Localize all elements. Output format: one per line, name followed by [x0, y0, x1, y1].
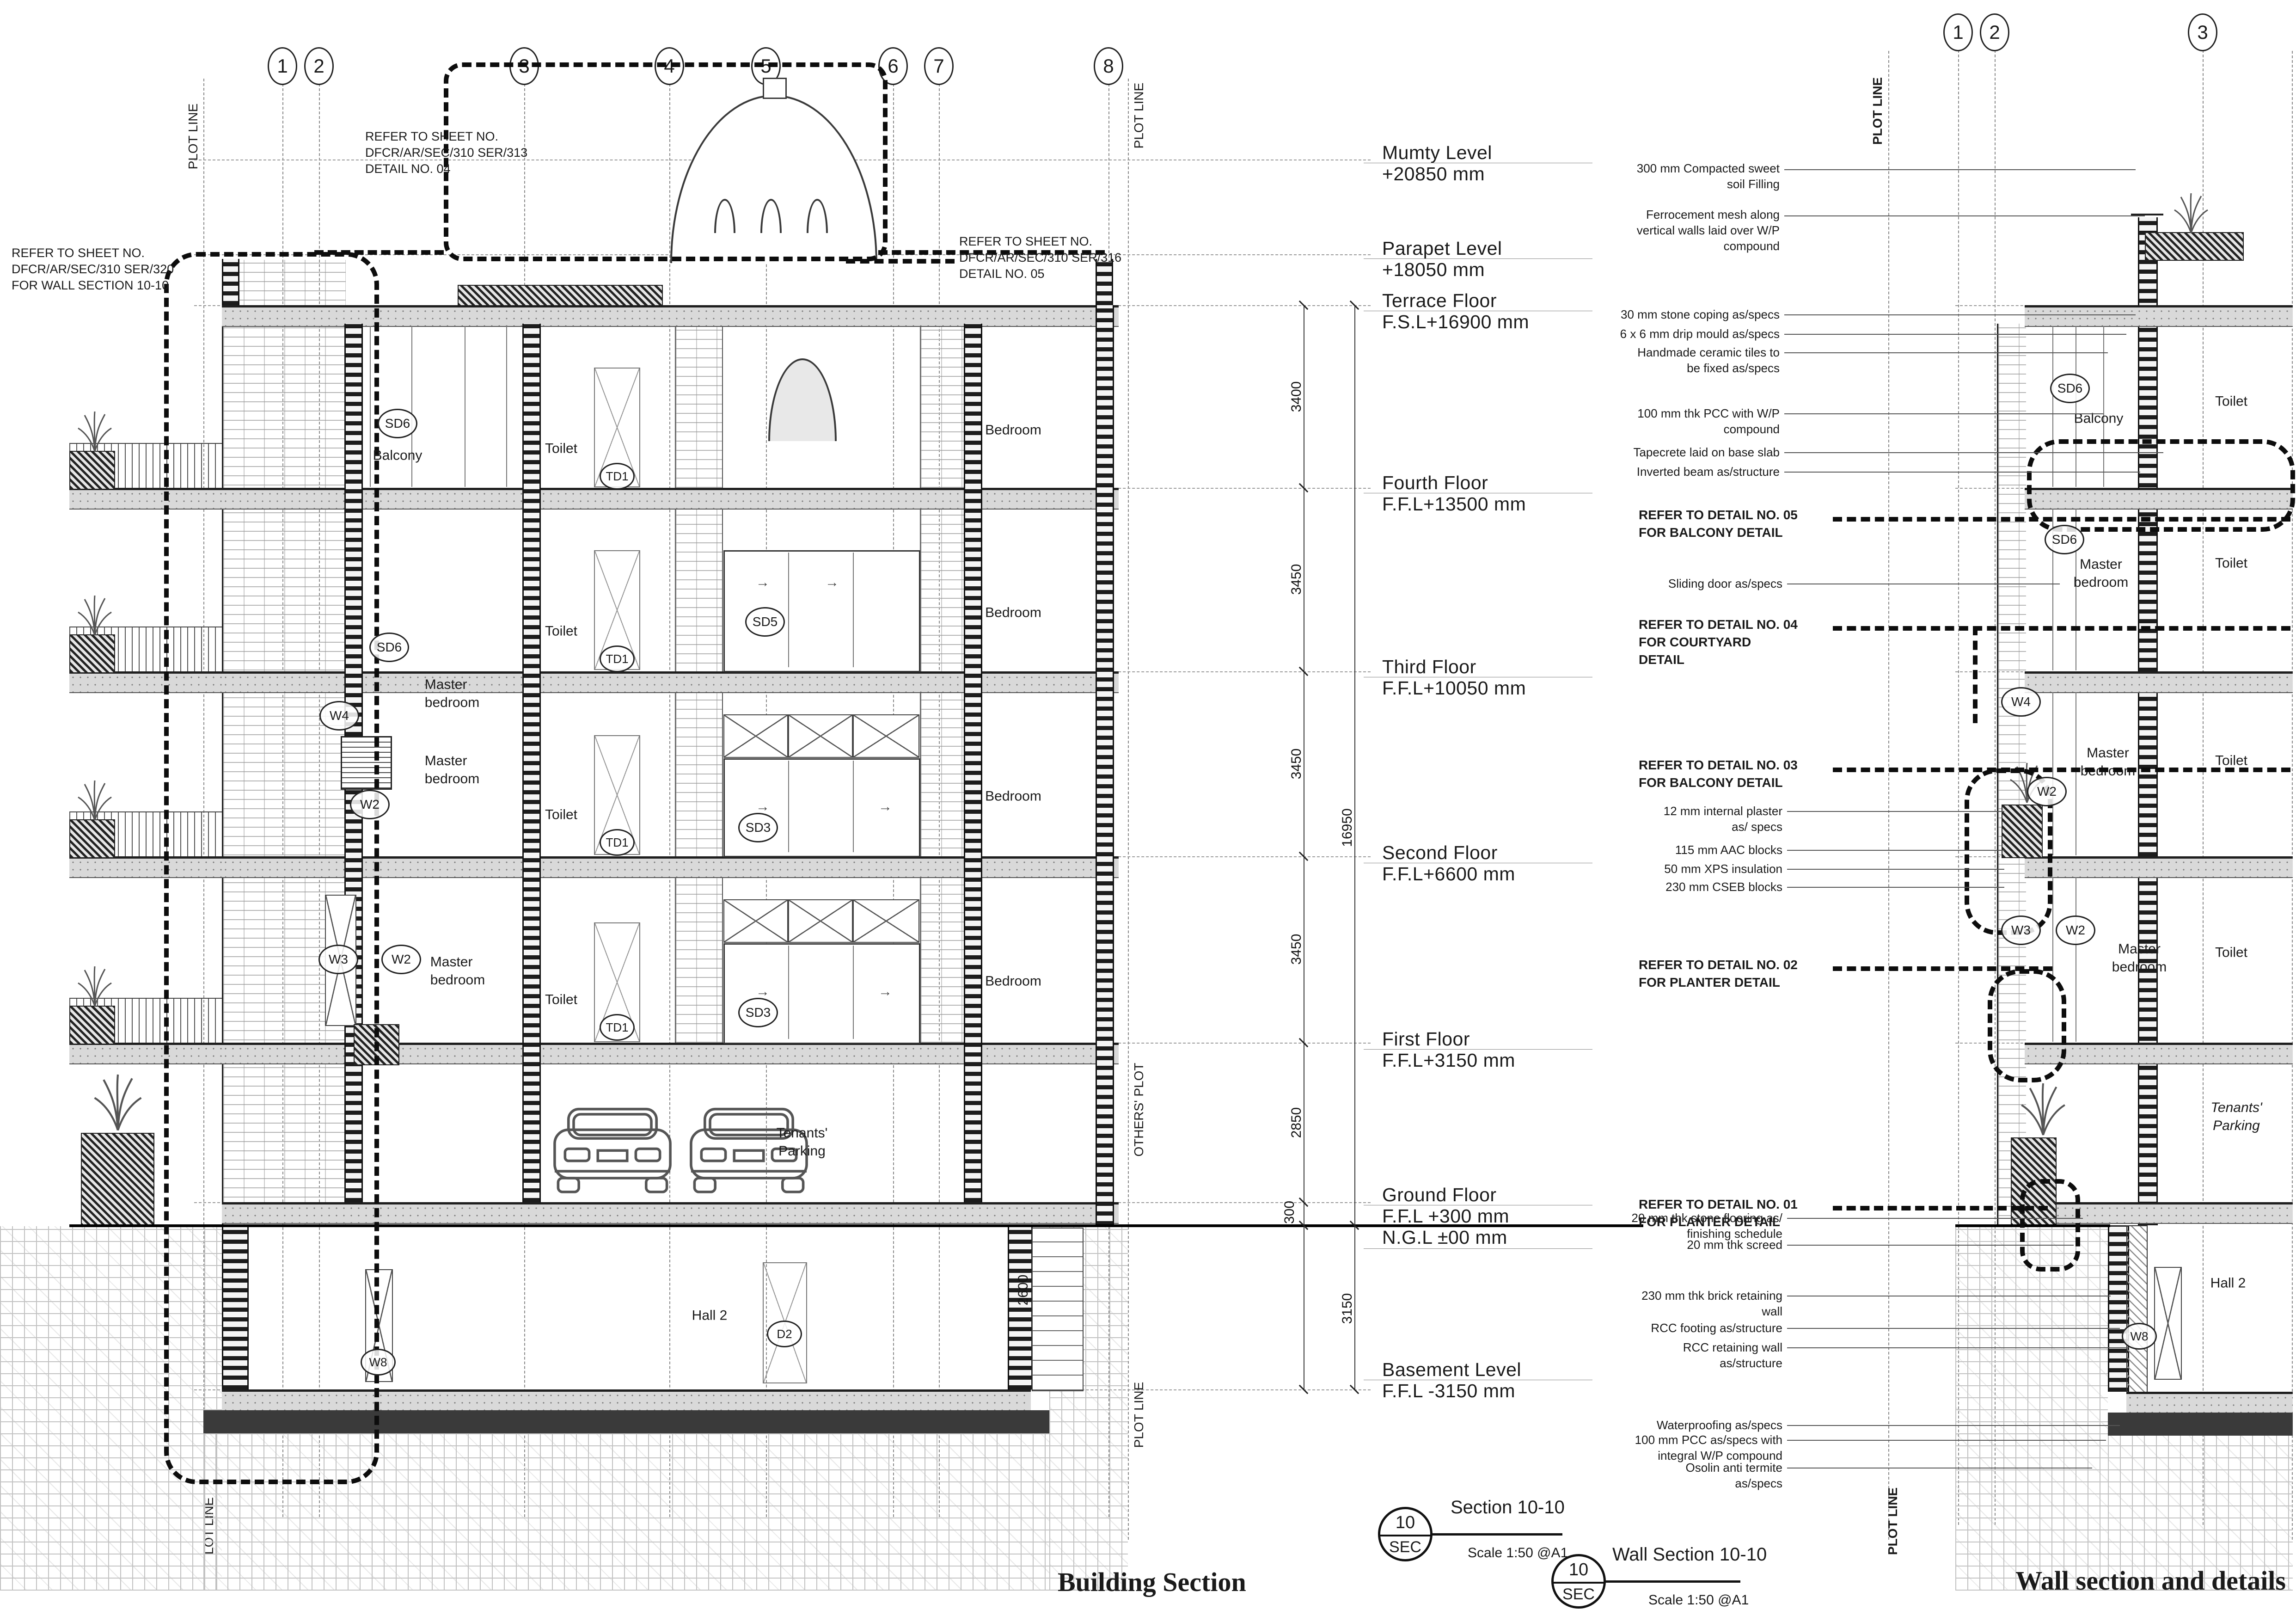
tag-label: SD3	[746, 1005, 771, 1020]
room-label-bedroom: Bedroom	[985, 787, 1041, 805]
tag-sd6: SD6	[2045, 525, 2084, 554]
room-label-hall2: Hall 2	[692, 1307, 728, 1325]
detail-callout-box	[2020, 1179, 2080, 1272]
marker-line	[1604, 1580, 1740, 1583]
cut-wall	[1096, 305, 1114, 1225]
refer-detail-03: REFER TO DETAIL NO. 03 FOR BALCONY DETAI…	[1639, 756, 1798, 792]
plot-line-label: PLOT LINE	[1870, 77, 1885, 145]
tag-d2: D2	[767, 1321, 802, 1347]
tag-label: TD1	[606, 836, 628, 850]
section-scale: Scale 1:50 @A1	[1468, 1545, 1568, 1561]
tag-w8: W8	[2122, 1323, 2157, 1350]
section-marker: 10 SEC	[1378, 1507, 1433, 1561]
slide-arrow: →	[878, 984, 892, 1000]
section-marker-sub: SEC	[1380, 1538, 1430, 1556]
ground-hatch	[1955, 1226, 2108, 1591]
section-marker: 10 SEC	[1551, 1554, 1606, 1609]
plot-line-label: PLOT LINE	[1132, 1382, 1146, 1448]
tag-w4: W4	[2001, 687, 2041, 717]
roof-slab	[2025, 305, 2293, 327]
glazing-line	[506, 326, 507, 487]
slide-arrow: →	[756, 575, 770, 590]
refer-detail-04: REFER TO DETAIL NO. 04 FOR COURTYARD DET…	[1639, 616, 1798, 668]
refer-detail-02: REFER TO DETAIL NO. 02 FOR PLANTER DETAI…	[1639, 956, 1798, 991]
level-value: F.F.L -3150 mm	[1382, 1381, 1604, 1402]
grid-line	[669, 84, 670, 1517]
level-name: Third Floor	[1382, 657, 1604, 678]
tag-label: W2	[392, 952, 411, 967]
refer-note-detail05: REFER TO SHEET NO. DFCR/AR/SEC/310 SER/3…	[959, 233, 1121, 282]
glazing-line	[2076, 877, 2076, 1042]
grid-bubble: 2	[1980, 13, 2009, 51]
cut-wall	[522, 324, 541, 1202]
tag-sd6: SD6	[369, 633, 409, 662]
planter-box	[81, 1133, 154, 1227]
plant-icon	[2163, 189, 2219, 235]
leader-line	[1787, 869, 2004, 870]
grid-bubble: 3	[2188, 13, 2217, 51]
section-marker-sub: SEC	[1554, 1585, 1604, 1604]
tag-label: W8	[2131, 1329, 2149, 1344]
plot-boundary-line	[1128, 79, 1129, 1540]
tag-label: TD1	[606, 469, 628, 484]
tag-td1: TD1	[600, 645, 635, 672]
shaft-rungs	[1032, 1228, 1084, 1391]
grid-bubble-label: 8	[1103, 55, 1114, 77]
level-underline	[1364, 1049, 1592, 1050]
annotation: Tapecrete laid on base slab	[1502, 445, 1780, 461]
section-marker-number: 10	[1554, 1560, 1604, 1580]
foundation-raft	[2108, 1413, 2293, 1436]
annotation: RCC retaining wall as/structure	[1505, 1340, 1782, 1371]
rcc-retaining-wall	[2126, 1225, 2148, 1394]
marker-line	[1431, 1533, 1562, 1536]
leader-line	[1787, 1218, 2083, 1219]
plant-icon	[2013, 1077, 2073, 1137]
refer-detail-05: REFER TO DETAIL NO. 05 FOR BALCONY DETAI…	[1639, 506, 1798, 541]
roof-garden-band	[458, 285, 663, 307]
grid-bubble-label: 1	[277, 55, 288, 77]
annotation: 20 mm thk screed	[1505, 1237, 1782, 1253]
wall-section-callout-box	[164, 252, 379, 1484]
room-label-tenants-parking: Tenants' Parking	[2210, 1099, 2262, 1135]
room-label-toilet: Toilet	[2215, 393, 2247, 411]
tag-sd6: SD6	[2050, 374, 2090, 403]
annotation: Osolin anti termite as/specs	[1505, 1460, 1782, 1492]
tag-sd3: SD3	[738, 998, 778, 1027]
planter-box	[69, 819, 115, 858]
callout-dash-line	[1833, 626, 2290, 631]
tag-w4: W4	[319, 701, 359, 731]
tag-label: W2	[2037, 784, 2057, 799]
slide-arrow: →	[825, 575, 839, 590]
tag-w3: W3	[318, 945, 358, 974]
tag-w3: W3	[2001, 915, 2041, 945]
tag-label: W4	[330, 708, 349, 723]
tag-w2: W2	[2027, 777, 2067, 806]
tag-sd5: SD5	[745, 607, 785, 637]
level-underline	[1364, 1205, 1592, 1205]
leader-line	[1787, 811, 2004, 812]
room-label-toilet: Toilet	[2215, 554, 2247, 572]
tag-label: SD6	[385, 416, 410, 431]
refer-note-wallsec: REFER TO SHEET NO. DFCR/AR/SEC/310 SER/3…	[12, 245, 174, 294]
plant-icon	[69, 591, 120, 637]
room-label-bedroom: Bedroom	[985, 604, 1041, 622]
room-label-balcony: Balcony	[373, 447, 422, 465]
transom-panel	[723, 714, 788, 758]
callout-dash-line	[314, 250, 444, 255]
annotation: 12 mm internal plaster as/ specs	[1505, 804, 1782, 835]
annotation: 230 mm thk brick retaining wall	[1505, 1288, 1782, 1320]
leader-line	[1787, 1425, 2120, 1426]
tag-sd3: SD3	[738, 813, 778, 842]
callout-dash-line	[1973, 626, 1978, 723]
dim-value: 300	[1282, 1201, 1298, 1224]
leader-line	[1787, 1347, 2129, 1348]
plot-line-label: PLOT LINE	[1132, 83, 1146, 149]
leader-line	[1784, 169, 2136, 170]
dim-value: 16950	[1340, 808, 1355, 847]
plot-boundary-line	[2292, 51, 2293, 1540]
callout-dash-line	[1833, 966, 2052, 971]
transom-panel	[853, 714, 919, 758]
tag-w2: W2	[381, 945, 421, 974]
glazing-line	[465, 326, 465, 487]
level-underline	[1364, 1380, 1592, 1380]
level-underline	[1364, 677, 1592, 677]
annotation-sliding-door: Sliding door as/specs	[1505, 576, 1782, 592]
section-title: Wall Section 10-10	[1612, 1544, 1767, 1565]
grid-bubble-label: 2	[1989, 21, 2000, 43]
leader-line	[1787, 1440, 2106, 1441]
tag-label: W3	[2011, 923, 2031, 938]
tag-label: SD6	[2057, 381, 2082, 396]
glazing-line	[2052, 692, 2053, 855]
plot-line-label: PLOT LINE	[1886, 1487, 1900, 1555]
leader-line	[1787, 1328, 2120, 1329]
room-label-toilet: Toilet	[545, 622, 577, 640]
annotation: Waterproofing as/specs	[1505, 1418, 1782, 1433]
drawing-sheet: 1 2 3 4 5 6 7 8 1 2 3 PLOT LINE PLOT LIN…	[0, 0, 2296, 1622]
room-label-bedroom: Bedroom	[985, 972, 1041, 990]
tag-label: W4	[2011, 694, 2031, 709]
annotation: 100 mm PCC as/specs with integral W/P co…	[1505, 1432, 1782, 1464]
annotation: Inverted beam as/structure	[1502, 464, 1780, 480]
room-label-master: Master bedroom	[2112, 940, 2167, 976]
leader-line	[1784, 314, 2136, 315]
grid-bubble-label: 7	[933, 55, 944, 77]
slide-arrow: →	[756, 984, 770, 1000]
tag-sd6: SD6	[378, 409, 417, 438]
leader-line	[1784, 215, 2145, 216]
transom-panel	[723, 899, 788, 943]
tag-w8: W8	[361, 1349, 396, 1376]
transom-panel	[853, 899, 919, 943]
planter-box	[2145, 232, 2244, 261]
room-label-toilet: Toilet	[2215, 944, 2247, 962]
leader-line	[1784, 334, 2126, 335]
shaft-dim: 2600	[1016, 1275, 1031, 1306]
callout-dash-line	[1833, 517, 2290, 522]
annotation: 100 mm thk PCC with W/P compound	[1502, 406, 1780, 437]
basement-window-w8	[2154, 1267, 2182, 1380]
level-value: F.F.L+10050 mm	[1382, 678, 1604, 699]
plant-icon	[86, 1068, 150, 1133]
others-plot-label: OTHERS' PLOT	[1132, 1063, 1146, 1157]
leader-line	[1787, 584, 2060, 584]
room-label-master: Master bedroom	[430, 953, 485, 989]
tag-label: SD5	[753, 614, 778, 629]
tag-label: D2	[777, 1327, 792, 1341]
dim-value: 3450	[1289, 934, 1304, 965]
detail-callout-box	[1988, 969, 2066, 1082]
annotation: 50 mm XPS insulation	[1505, 861, 1782, 877]
leader-line	[1787, 1468, 2092, 1468]
car-icon	[548, 1100, 677, 1204]
grid-line	[2203, 50, 2204, 1525]
room-label-balcony: Balcony	[2074, 410, 2124, 428]
callout-dash-line	[846, 259, 955, 264]
section-marker-number: 10	[1380, 1513, 1430, 1533]
cut-wall	[2138, 217, 2158, 1225]
window-mullion	[853, 761, 854, 852]
grid-bubble-label: 3	[2197, 21, 2208, 43]
leader-line	[1787, 887, 2004, 888]
room-label-toilet: Toilet	[2215, 752, 2247, 770]
level-label: Third FloorF.F.L+10050 mm	[1382, 657, 1604, 699]
cut-wall	[964, 324, 982, 1202]
room-label-hall2: Hall 2	[2210, 1274, 2246, 1292]
floor-slab	[2025, 856, 2293, 878]
courtyard-arch-niche	[768, 358, 837, 441]
dim-value: 3150	[1340, 1293, 1355, 1324]
drawing-title-building-section: Building Section	[1058, 1567, 1246, 1597]
annotation: RCC footing as/structure	[1505, 1321, 1782, 1336]
annotation: 115 mm AAC blocks	[1505, 842, 1782, 858]
tag-label: SD3	[746, 820, 771, 835]
annotation: 6 x 6 mm drip mould as/specs	[1502, 326, 1780, 342]
grid-bubble: 1	[268, 47, 297, 85]
annotation: 30 mm stone coping as/specs	[1502, 307, 1780, 323]
plant-icon	[69, 407, 120, 453]
floor-slab	[2025, 671, 2293, 693]
annotation: 230 mm CSEB blocks	[1505, 879, 1782, 895]
level-name: Ground Floor	[1382, 1185, 1604, 1206]
transom-panel	[788, 714, 853, 758]
dim-value: 2850	[1289, 1107, 1304, 1138]
grid-bubble-label: 2	[313, 55, 324, 77]
window-mullion	[788, 761, 789, 852]
level-name: First Floor	[1382, 1029, 1604, 1050]
tag-label: W2	[360, 797, 380, 812]
tag-label: W3	[329, 952, 348, 967]
room-label-master: Master bedroom	[2074, 555, 2128, 591]
room-label-toilet: Toilet	[545, 806, 577, 824]
level-value: +18050 mm	[1382, 259, 1604, 281]
grid-bubble: 2	[304, 47, 334, 85]
level-label: First FloorF.F.L+3150 mm	[1382, 1029, 1604, 1071]
annotation: 300 mm Compacted sweet soil Filling	[1502, 161, 1780, 192]
grid-bubble: 7	[924, 47, 954, 85]
glazing-line	[2076, 692, 2076, 855]
planter-box	[69, 1006, 115, 1044]
grid-bubble-label: 6	[888, 55, 898, 77]
room-label-master: Master bedroom	[425, 752, 479, 788]
tag-td1: TD1	[600, 829, 635, 856]
transom-panel	[788, 899, 853, 943]
plant-icon	[69, 962, 120, 1008]
planter-box	[69, 634, 115, 673]
slide-arrow: →	[756, 799, 770, 815]
leader-line	[1784, 452, 2163, 453]
leader-line	[1784, 413, 2103, 414]
section-scale: Scale 1:50 @A1	[1648, 1592, 1749, 1608]
tag-w2: W2	[350, 790, 390, 819]
leader-line	[1787, 850, 2004, 851]
leader-line	[1787, 1245, 2074, 1246]
grid-bubble: 1	[1943, 13, 1973, 51]
planter-box	[69, 451, 115, 490]
tag-label: TD1	[606, 652, 628, 666]
plot-boundary-line	[1888, 51, 1889, 1540]
tag-label: SD6	[2052, 532, 2077, 547]
tag-label: TD1	[606, 1020, 628, 1035]
level-underline	[1364, 258, 1592, 259]
dim-value: 3450	[1289, 564, 1304, 595]
tag-label: SD6	[377, 640, 402, 655]
level-underline	[1364, 493, 1592, 493]
tag-td1: TD1	[600, 1014, 635, 1041]
dim-value: 3450	[1289, 749, 1304, 780]
tag-td1: TD1	[600, 463, 635, 490]
room-label-toilet: Toilet	[545, 991, 577, 1009]
grid-bubble-label: 1	[1953, 21, 1963, 43]
window-mullion	[788, 946, 789, 1039]
leader-line	[1784, 352, 2108, 353]
level-value: F.F.L+3150 mm	[1382, 1050, 1604, 1071]
leader-line	[1784, 472, 2140, 473]
annotation: Ferrocement mesh along vertical walls la…	[1502, 207, 1780, 254]
section-title: Section 10-10	[1451, 1497, 1565, 1518]
callout-dash-line	[1833, 1206, 2048, 1210]
callout-dash-line	[1833, 768, 2290, 772]
window-mullion	[853, 946, 854, 1039]
room-label-master: Master bedroom	[425, 676, 479, 712]
tag-w2: W2	[2056, 915, 2095, 945]
room-label-tenants-parking: Tenants' Parking	[777, 1124, 828, 1160]
tag-label: W8	[369, 1355, 387, 1370]
room-label-toilet: Toilet	[545, 440, 577, 458]
leader-line	[1787, 1296, 2111, 1296]
room-label-bedroom: Bedroom	[985, 421, 1041, 439]
level-value: F.F.L+13500 mm	[1382, 494, 1604, 515]
refer-note-detail04: REFER TO SHEET NO. DFCR/AR/SEC/310 SER/3…	[365, 129, 527, 177]
grid-bubble: 8	[1094, 47, 1123, 85]
dim-value: 3400	[1289, 381, 1304, 412]
window-mullion	[788, 553, 789, 667]
slide-arrow: →	[878, 799, 892, 815]
basement-wall	[1008, 1225, 1033, 1389]
tag-label: W2	[2066, 923, 2085, 938]
room-label-master: Master bedroom	[2081, 744, 2135, 780]
window-mullion	[853, 553, 854, 667]
plant-icon	[69, 776, 120, 822]
annotation: Handmade ceramic tiles to be fixed as/sp…	[1502, 345, 1780, 376]
drawing-title-wall-section: Wall section and details	[2015, 1565, 2286, 1596]
